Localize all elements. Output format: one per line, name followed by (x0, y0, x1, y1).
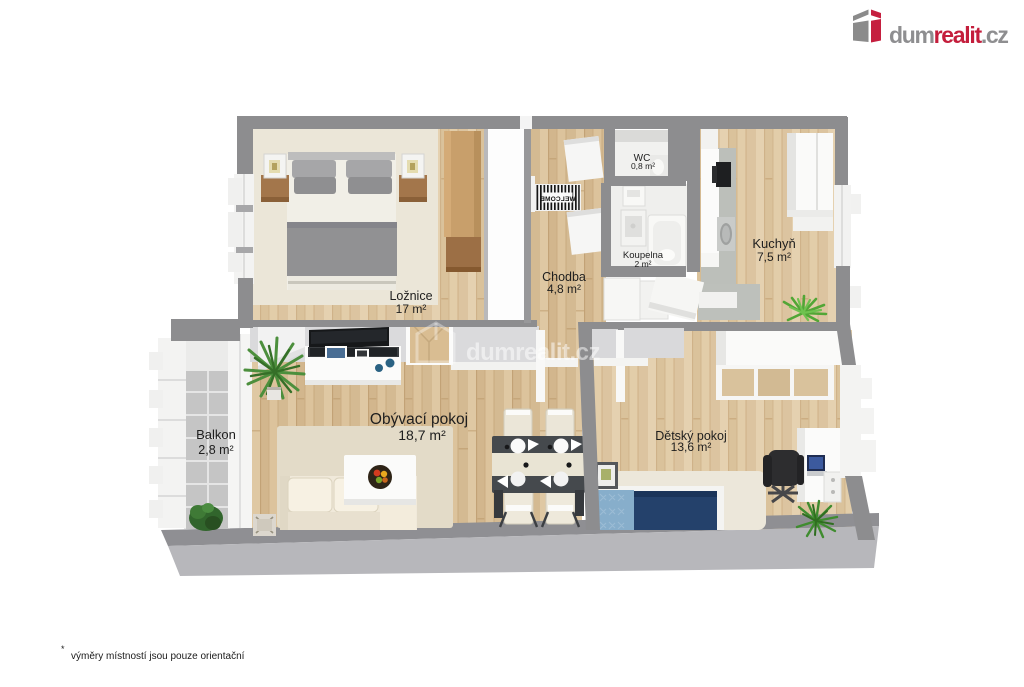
svg-text:7,5 m²: 7,5 m² (757, 250, 791, 264)
svg-text:dumrealit.cz: dumrealit.cz (466, 339, 601, 366)
svg-text:Balkon: Balkon (196, 427, 236, 442)
svg-text:Ložnice: Ložnice (389, 289, 432, 303)
svg-text:4,8 m²: 4,8 m² (547, 282, 581, 296)
svg-text:*: * (61, 644, 65, 654)
svg-text:2 m²: 2 m² (635, 259, 652, 269)
svg-text:Kuchyň: Kuchyň (752, 236, 795, 251)
svg-text:17 m²: 17 m² (396, 302, 427, 316)
svg-text:2,8 m²: 2,8 m² (198, 443, 233, 457)
svg-text:18,7 m²: 18,7 m² (398, 427, 446, 443)
svg-text:0,8 m²: 0,8 m² (631, 161, 655, 171)
svg-text:dumrealit.cz: dumrealit.cz (889, 22, 1008, 48)
svg-text:13,6 m²: 13,6 m² (671, 440, 712, 454)
svg-text:Obývací pokoj: Obývací pokoj (370, 411, 468, 428)
svg-text:výměry místností jsou pouze or: výměry místností jsou pouze orientační (71, 651, 245, 662)
svg-text:WELCOME: WELCOME (540, 196, 576, 203)
